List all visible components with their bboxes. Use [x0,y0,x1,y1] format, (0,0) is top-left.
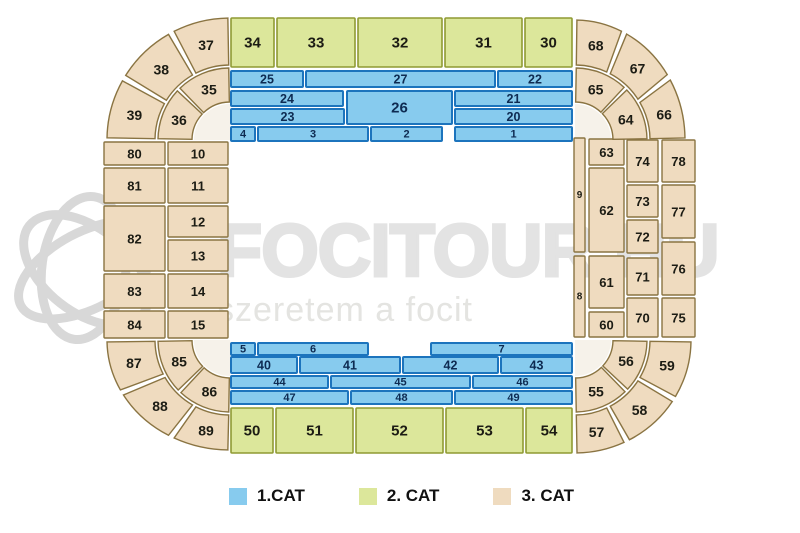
section-label: 86 [202,383,218,399]
section-61[interactable]: 61 [589,256,624,308]
section-label: 82 [127,232,141,247]
section-label: 77 [671,205,685,220]
section-51[interactable]: 51 [276,408,353,453]
section-26[interactable]: 26 [347,91,452,124]
section-72[interactable]: 72 [627,220,658,253]
section-label: 59 [659,358,675,374]
section-label: 33 [308,35,325,52]
section-8[interactable]: 8 [574,256,585,337]
section-label: 42 [444,359,458,373]
section-label: 6 [310,344,316,356]
section-label: 66 [656,106,672,122]
section-27[interactable]: 27 [306,71,495,87]
legend-item-cat1: 1.CAT [229,486,305,506]
section-label: 81 [127,179,141,194]
section-label: 13 [191,249,205,264]
section-label: 87 [126,355,142,371]
section-24[interactable]: 24 [231,91,343,106]
section-label: 41 [343,359,357,373]
section-label: 51 [306,423,323,440]
section-83[interactable]: 83 [104,274,165,308]
section-14[interactable]: 14 [168,274,228,308]
legend-swatch-cat3 [493,488,511,505]
section-33[interactable]: 33 [277,18,355,67]
section-label: 73 [635,194,649,209]
section-label: 46 [516,377,528,389]
section-label: 21 [507,92,521,106]
section-44[interactable]: 44 [231,376,328,389]
legend-item-cat2: 2. CAT [359,486,440,506]
section-7[interactable]: 7 [431,343,572,356]
section-23[interactable]: 23 [231,109,344,124]
section-82[interactable]: 82 [104,206,165,271]
section-label: 11 [191,179,205,194]
section-11[interactable]: 11 [168,168,228,203]
section-label: 89 [198,422,214,438]
section-label: 57 [589,424,605,440]
section-77[interactable]: 77 [662,185,695,238]
section-label: 50 [244,423,261,440]
section-63[interactable]: 63 [589,139,624,165]
section-54[interactable]: 54 [526,408,572,453]
section-label: 14 [191,284,206,299]
section-10[interactable]: 10 [168,142,228,165]
section-label: 37 [198,37,214,53]
legend-item-cat3: 3. CAT [493,486,574,506]
section-label: 56 [618,353,634,369]
legend-label: 2. CAT [387,486,440,506]
section-label: 43 [530,359,544,373]
section-label: 38 [153,62,169,78]
section-label: 60 [599,318,613,333]
section-label: 75 [671,311,685,326]
section-label: 20 [507,110,521,124]
section-42[interactable]: 42 [403,357,498,373]
section-5[interactable]: 5 [231,343,255,356]
section-label: 63 [599,145,613,160]
section-52[interactable]: 52 [356,408,443,453]
section-label: 26 [391,100,408,117]
section-label: 49 [507,392,519,404]
section-label: 48 [395,392,407,404]
section-label: 10 [191,147,205,162]
section-label: 32 [392,35,409,52]
category-legend: 1.CAT2. CAT3. CAT [229,486,574,506]
section-49[interactable]: 49 [455,391,572,404]
section-43[interactable]: 43 [501,357,572,373]
section-62[interactable]: 62 [589,168,624,252]
section-78[interactable]: 78 [662,140,695,182]
section-12[interactable]: 12 [168,206,228,237]
section-80[interactable]: 80 [104,142,165,165]
section-71[interactable]: 71 [627,258,658,295]
section-label: 1 [510,129,516,141]
section-label: 85 [171,354,187,370]
section-label: 58 [632,402,648,418]
section-label: 36 [171,112,187,128]
section-label: 80 [127,147,141,162]
section-label: 88 [152,398,168,414]
section-label: 5 [240,344,246,356]
section-label: 53 [476,423,493,440]
section-label: 68 [588,37,604,53]
section-label: 35 [201,82,217,98]
section-label: 74 [635,154,650,169]
section-label: 34 [244,35,261,52]
section-3[interactable]: 3 [258,127,368,141]
section-81[interactable]: 81 [104,168,165,203]
section-label: 15 [191,318,205,333]
section-label: 54 [541,423,558,440]
section-73[interactable]: 73 [627,185,658,217]
section-15[interactable]: 15 [168,311,228,338]
section-label: 76 [671,262,685,277]
section-label: 31 [475,35,492,52]
section-60[interactable]: 60 [589,312,624,337]
section-label: 7 [498,344,504,356]
section-6[interactable]: 6 [258,343,368,356]
section-label: 2 [403,129,409,141]
section-label: 55 [588,383,604,399]
section-2[interactable]: 2 [371,127,442,141]
section-1[interactable]: 1 [455,127,572,141]
section-label: 84 [127,318,142,333]
section-label: 67 [630,61,646,77]
section-label: 25 [260,73,274,87]
section-45[interactable]: 45 [331,376,470,389]
section-label: 83 [127,284,141,299]
watermark-tagline-text: szeretem a focit [217,291,473,329]
section-label: 27 [394,73,408,87]
section-46[interactable]: 46 [473,376,572,389]
section-31[interactable]: 31 [445,18,522,67]
section-label: 23 [281,110,295,124]
section-76[interactable]: 76 [662,242,695,295]
section-label: 65 [588,82,604,98]
section-32[interactable]: 32 [358,18,442,67]
section-84[interactable]: 84 [104,311,165,338]
section-label: 71 [635,270,649,285]
section-label: 30 [540,35,557,52]
section-label: 64 [618,111,634,127]
section-label: 24 [280,92,294,106]
section-label: 47 [283,392,295,404]
section-41[interactable]: 41 [300,357,400,373]
section-13[interactable]: 13 [168,240,228,271]
section-label: 45 [394,377,406,389]
section-22[interactable]: 22 [498,71,572,87]
section-48[interactable]: 48 [351,391,452,404]
section-53[interactable]: 53 [446,408,523,453]
section-label: 72 [635,230,649,245]
section-label: 39 [127,107,143,123]
section-47[interactable]: 47 [231,391,348,404]
section-label: 4 [240,129,247,141]
section-label: 62 [599,203,613,218]
section-50[interactable]: 50 [231,408,273,453]
section-label: 52 [391,423,408,440]
legend-label: 3. CAT [521,486,574,506]
section-label: 78 [671,154,685,169]
section-label: 9 [577,190,583,201]
section-label: 70 [635,311,649,326]
seat-map: FOCITOUR.HU szeretem a focit 34333231302… [0,0,800,533]
legend-swatch-cat1 [229,488,247,505]
section-70[interactable]: 70 [627,298,658,337]
section-label: 3 [310,129,316,141]
section-label: 44 [273,377,286,389]
section-9[interactable]: 9 [574,138,585,252]
section-40[interactable]: 40 [231,357,297,373]
section-label: 12 [191,215,205,230]
legend-label: 1.CAT [257,486,305,506]
section-21[interactable]: 21 [455,91,572,106]
section-25[interactable]: 25 [231,71,303,87]
section-label: 61 [599,275,613,290]
section-74[interactable]: 74 [627,140,658,182]
section-label: 40 [257,359,271,373]
section-label: 8 [577,292,583,303]
section-label: 22 [528,73,542,87]
legend-swatch-cat2 [359,488,377,505]
section-20[interactable]: 20 [455,109,572,124]
section-4[interactable]: 4 [231,127,255,141]
section-34[interactable]: 34 [231,18,274,67]
stadium-seat-map-page: FOCITOUR.HU szeretem a focit 34333231302… [0,0,800,533]
section-75[interactable]: 75 [662,298,695,337]
section-30[interactable]: 30 [525,18,572,67]
